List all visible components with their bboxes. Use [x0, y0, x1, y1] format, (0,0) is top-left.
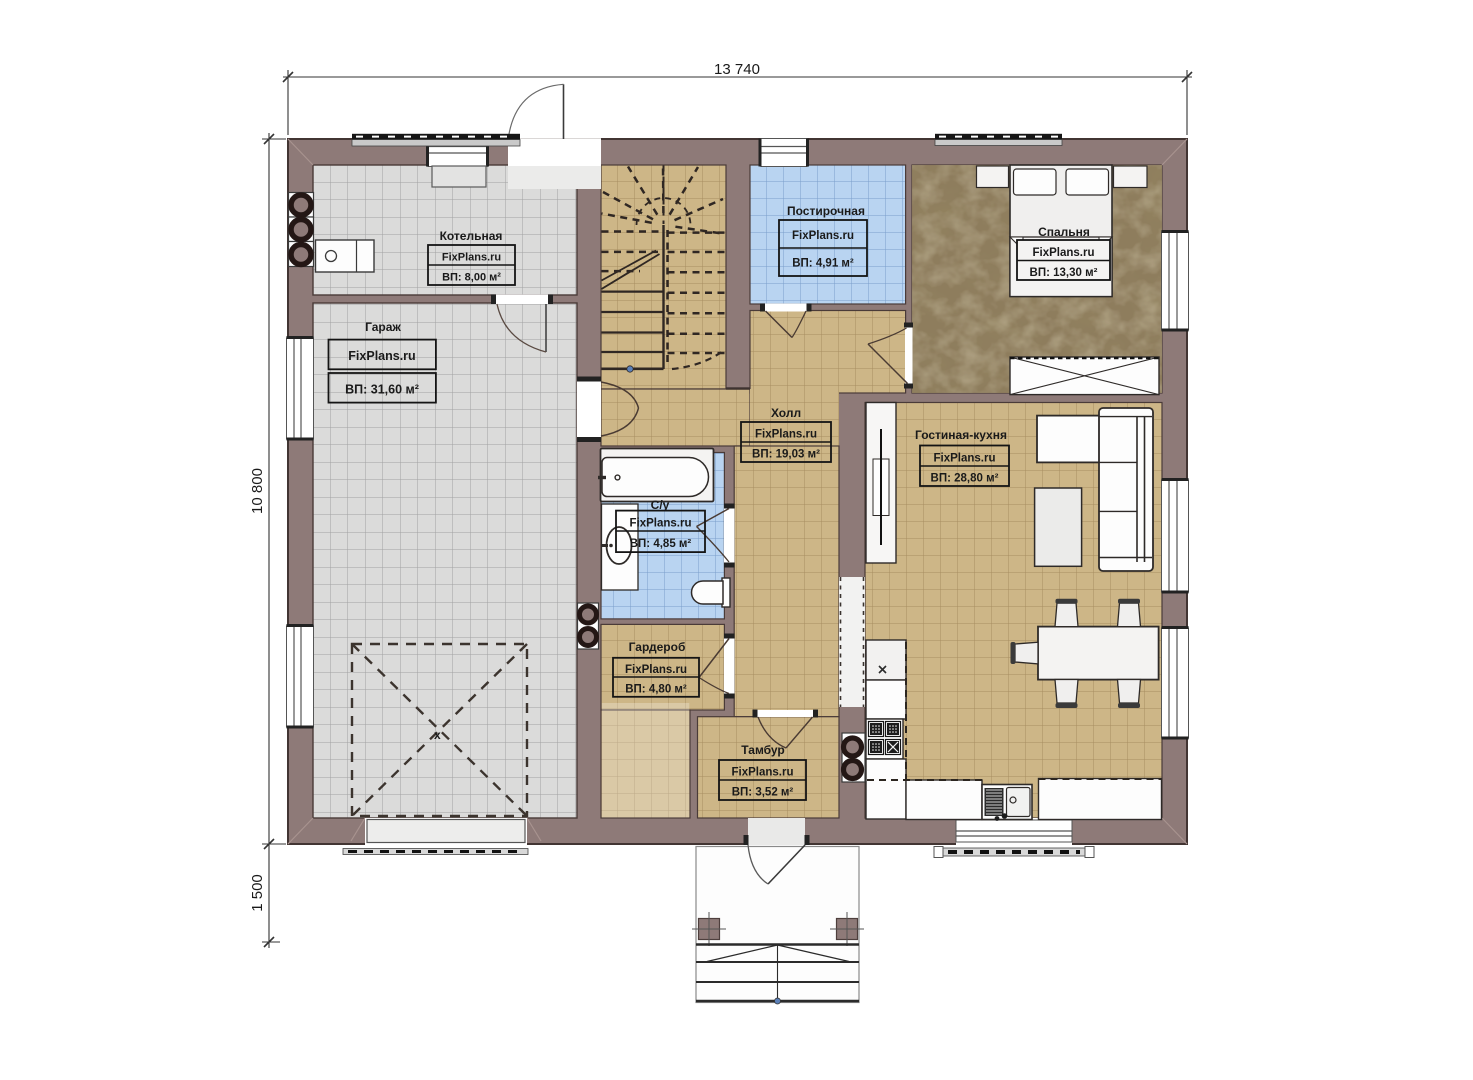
svg-text:13 740: 13 740: [714, 61, 760, 78]
svg-text:Гараж: Гараж: [365, 320, 401, 334]
svg-text:FixPlans.ru: FixPlans.ru: [348, 349, 415, 363]
svg-text:ВП: 19,03 м²: ВП: 19,03 м²: [752, 449, 820, 461]
svg-text:FixPlans.ru: FixPlans.ru: [934, 453, 996, 465]
svg-text:Тамбур: Тамбур: [741, 743, 785, 757]
svg-text:Гардероб: Гардероб: [629, 640, 686, 654]
svg-text:Холл: Холл: [771, 406, 801, 420]
svg-text:Постирочная: Постирочная: [787, 204, 865, 218]
svg-text:FixPlans.ru: FixPlans.ru: [1033, 247, 1095, 259]
svg-text:ВП: 31,60 м²: ВП: 31,60 м²: [345, 383, 419, 397]
svg-text:Котельная: Котельная: [440, 229, 503, 243]
svg-text:FixPlans.ru: FixPlans.ru: [625, 664, 687, 676]
svg-text:ВП: 4,91 м²: ВП: 4,91 м²: [792, 258, 854, 270]
svg-text:Гостиная-кухня: Гостиная-кухня: [915, 428, 1007, 442]
svg-text:FixPlans.ru: FixPlans.ru: [630, 518, 692, 530]
svg-text:FixPlans.ru: FixPlans.ru: [732, 767, 794, 779]
svg-text:FixPlans.ru: FixPlans.ru: [442, 252, 501, 264]
svg-text:ВП: 28,80 м²: ВП: 28,80 м²: [931, 473, 999, 485]
svg-text:Спальня: Спальня: [1038, 225, 1090, 239]
svg-text:ВП: 8,00 м²: ВП: 8,00 м²: [442, 272, 501, 284]
svg-text:FixPlans.ru: FixPlans.ru: [792, 230, 854, 242]
svg-text:1 500: 1 500: [249, 874, 266, 912]
svg-text:ВП: 4,85 м²: ВП: 4,85 м²: [630, 538, 692, 550]
svg-text:ВП: 13,30 м²: ВП: 13,30 м²: [1030, 267, 1098, 279]
svg-text:ВП: 4,80 м²: ВП: 4,80 м²: [625, 684, 687, 696]
svg-text:FixPlans.ru: FixPlans.ru: [755, 429, 817, 441]
svg-text:10 800: 10 800: [249, 468, 266, 514]
svg-text:ВП: 3,52 м²: ВП: 3,52 м²: [732, 787, 794, 799]
svg-text:x: x: [434, 728, 441, 742]
